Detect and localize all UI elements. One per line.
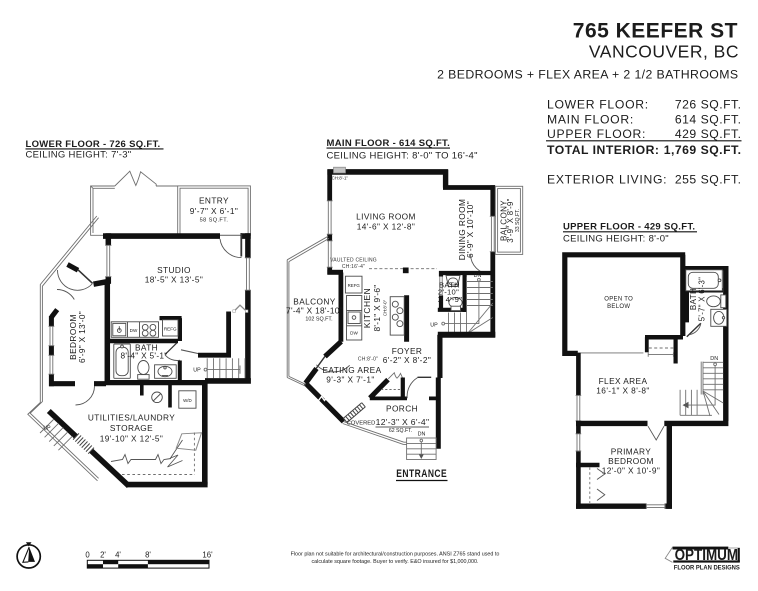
svg-text:62 SQ.FT.: 62 SQ.FT. [389, 428, 412, 434]
svg-text:LOWER FLOOR - 726 SQ.FT.: LOWER FLOOR - 726 SQ.FT. [26, 139, 161, 150]
svg-text:CEILING HEIGHT: 8'-0" TO 16'-4: CEILING HEIGHT: 8'-0" TO 16'-4" [327, 150, 478, 161]
svg-text:FLEX AREA: FLEX AREA [599, 376, 648, 386]
svg-text:CH:8'-0": CH:8'-0" [358, 357, 378, 363]
svg-text:8'-1" X 9'-6": 8'-1" X 9'-6" [372, 284, 382, 331]
svg-text:CH:8'-1": CH:8'-1" [332, 176, 349, 181]
svg-text:ENTRANCE: ENTRANCE [396, 468, 447, 480]
svg-text:255 SQ.FT.: 255 SQ.FT. [675, 173, 742, 187]
svg-text:EATING AREA: EATING AREA [322, 365, 381, 375]
svg-text:765 KEEFER ST: 765 KEEFER ST [573, 20, 738, 43]
svg-text:BELOW: BELOW [607, 304, 630, 310]
svg-text:58 SQ.FT.: 58 SQ.FT. [200, 218, 229, 224]
svg-text:16': 16' [202, 551, 213, 560]
svg-text:DW: DW [130, 328, 138, 333]
svg-text:16'-1" X 8'-8": 16'-1" X 8'-8" [596, 386, 649, 396]
svg-text:4': 4' [115, 551, 121, 560]
svg-text:14'-6" X 12'-8": 14'-6" X 12'-8" [357, 222, 415, 232]
svg-text:UP: UP [43, 426, 51, 432]
svg-text:9'-3" X 7'-1": 9'-3" X 7'-1" [326, 375, 374, 385]
svg-text:LOWER FLOOR:: LOWER FLOOR: [547, 98, 649, 112]
svg-text:ENTRY: ENTRY [199, 196, 229, 206]
svg-text:DN: DN [710, 356, 718, 362]
svg-text:UP: UP [193, 368, 201, 374]
svg-text:19'-10" X 12'-5": 19'-10" X 12'-5" [100, 434, 163, 444]
svg-text:6'-2" X 8'-2": 6'-2" X 8'-2" [383, 355, 431, 365]
svg-text:12'-3" X 6'-4": 12'-3" X 6'-4" [376, 417, 430, 427]
svg-text:UTILITIES/LAUNDRY: UTILITIES/LAUNDRY [88, 413, 175, 423]
svg-text:DN: DN [474, 273, 482, 279]
svg-text:UPPER FLOOR:: UPPER FLOOR: [547, 127, 646, 141]
svg-text:OPTIMUM: OPTIMUM [675, 547, 739, 564]
svg-text:FLOOR PLAN DESIGNS: FLOOR PLAN DESIGNS [674, 565, 741, 572]
svg-text:PORCH: PORCH [386, 404, 418, 414]
svg-text:STUDIO: STUDIO [157, 265, 191, 275]
svg-text:6'-9" X 10'-10": 6'-9" X 10'-10" [465, 201, 475, 258]
svg-text:COVERED: COVERED [347, 421, 376, 427]
svg-text:VANCOUVER, BC: VANCOUVER, BC [589, 42, 739, 62]
svg-text:KITCHEN: KITCHEN [362, 288, 372, 328]
svg-text:429 SQ.FT.: 429 SQ.FT. [675, 127, 742, 141]
svg-text:0: 0 [85, 551, 90, 560]
svg-text:VAULTED CEILING: VAULTED CEILING [330, 258, 377, 264]
svg-text:9'-7" X 6'-1": 9'-7" X 6'-1" [190, 206, 238, 216]
svg-text:12'-0" X 10'-9": 12'-0" X 10'-9" [602, 466, 660, 476]
svg-text:CH:8'-0": CH:8'-0" [383, 299, 388, 316]
svg-text:OPEN TO: OPEN TO [604, 297, 633, 303]
svg-text:8': 8' [145, 551, 151, 560]
svg-text:MAIN FLOOR:: MAIN FLOOR: [547, 113, 634, 127]
svg-text:CEILING HEIGHT: 7'-3": CEILING HEIGHT: 7'-3" [26, 150, 132, 161]
svg-text:3'-9" X 8'-9": 3'-9" X 8'-9" [506, 198, 515, 242]
svg-text:DW: DW [350, 331, 358, 336]
svg-text:BEDROOM: BEDROOM [608, 456, 654, 466]
svg-text:DN: DN [418, 432, 426, 438]
svg-text:LIVING ROOM: LIVING ROOM [356, 212, 416, 222]
svg-text:102 SQ.FT.: 102 SQ.FT. [305, 317, 332, 323]
svg-text:PRIMARY: PRIMARY [611, 447, 652, 457]
svg-text:2 BEDROOMS + FLEX AREA + 2 1/2: 2 BEDROOMS + FLEX AREA + 2 1/2 BATHROOMS [437, 68, 738, 82]
svg-text:6'-9" X 13'-0": 6'-9" X 13'-0" [77, 311, 87, 363]
svg-text:1,769 SQ.FT.: 1,769 SQ.FT. [664, 143, 742, 157]
svg-text:W/D: W/D [183, 398, 192, 403]
svg-text:REFG: REFG [348, 283, 361, 288]
svg-text:18'-5" X 13'-5": 18'-5" X 13'-5" [145, 275, 203, 285]
svg-text:EXTERIOR LIVING:: EXTERIOR LIVING: [547, 173, 667, 187]
svg-text:X 4'-9": X 4'-9" [438, 295, 462, 304]
svg-text:REFG: REFG [164, 326, 177, 331]
svg-text:UPPER FLOOR - 429 SQ.FT.: UPPER FLOOR - 429 SQ.FT. [563, 222, 695, 233]
svg-text:TOTAL INTERIOR:: TOTAL INTERIOR: [547, 143, 659, 157]
svg-text:calculate square footage. Buye: calculate square footage. Buyer to verif… [311, 559, 478, 565]
svg-text:2': 2' [100, 551, 106, 560]
svg-text:STORAGE: STORAGE [110, 423, 153, 433]
svg-text:5'-7" X 6'-3": 5'-7" X 6'-3" [698, 277, 707, 321]
svg-text:UP: UP [430, 323, 438, 329]
svg-text:33 SQ.FT.: 33 SQ.FT. [515, 209, 521, 232]
svg-text:614 SQ.FT.: 614 SQ.FT. [675, 113, 742, 127]
svg-text:Floor plan not suitable for ar: Floor plan not suitable for architectura… [291, 552, 500, 558]
svg-text:726 SQ.FT.: 726 SQ.FT. [675, 98, 742, 112]
svg-text:7'-4" X 18'-10": 7'-4" X 18'-10" [286, 306, 343, 316]
svg-text:8'-4" X 5'-1": 8'-4" X 5'-1" [120, 351, 167, 361]
svg-text:CH:16'-4": CH:16'-4" [342, 264, 365, 270]
svg-text:MAIN FLOOR - 614 SQ.FT.: MAIN FLOOR - 614 SQ.FT. [327, 138, 451, 149]
svg-text:CEILING HEIGHT: 8'-0": CEILING HEIGHT: 8'-0" [563, 234, 669, 245]
